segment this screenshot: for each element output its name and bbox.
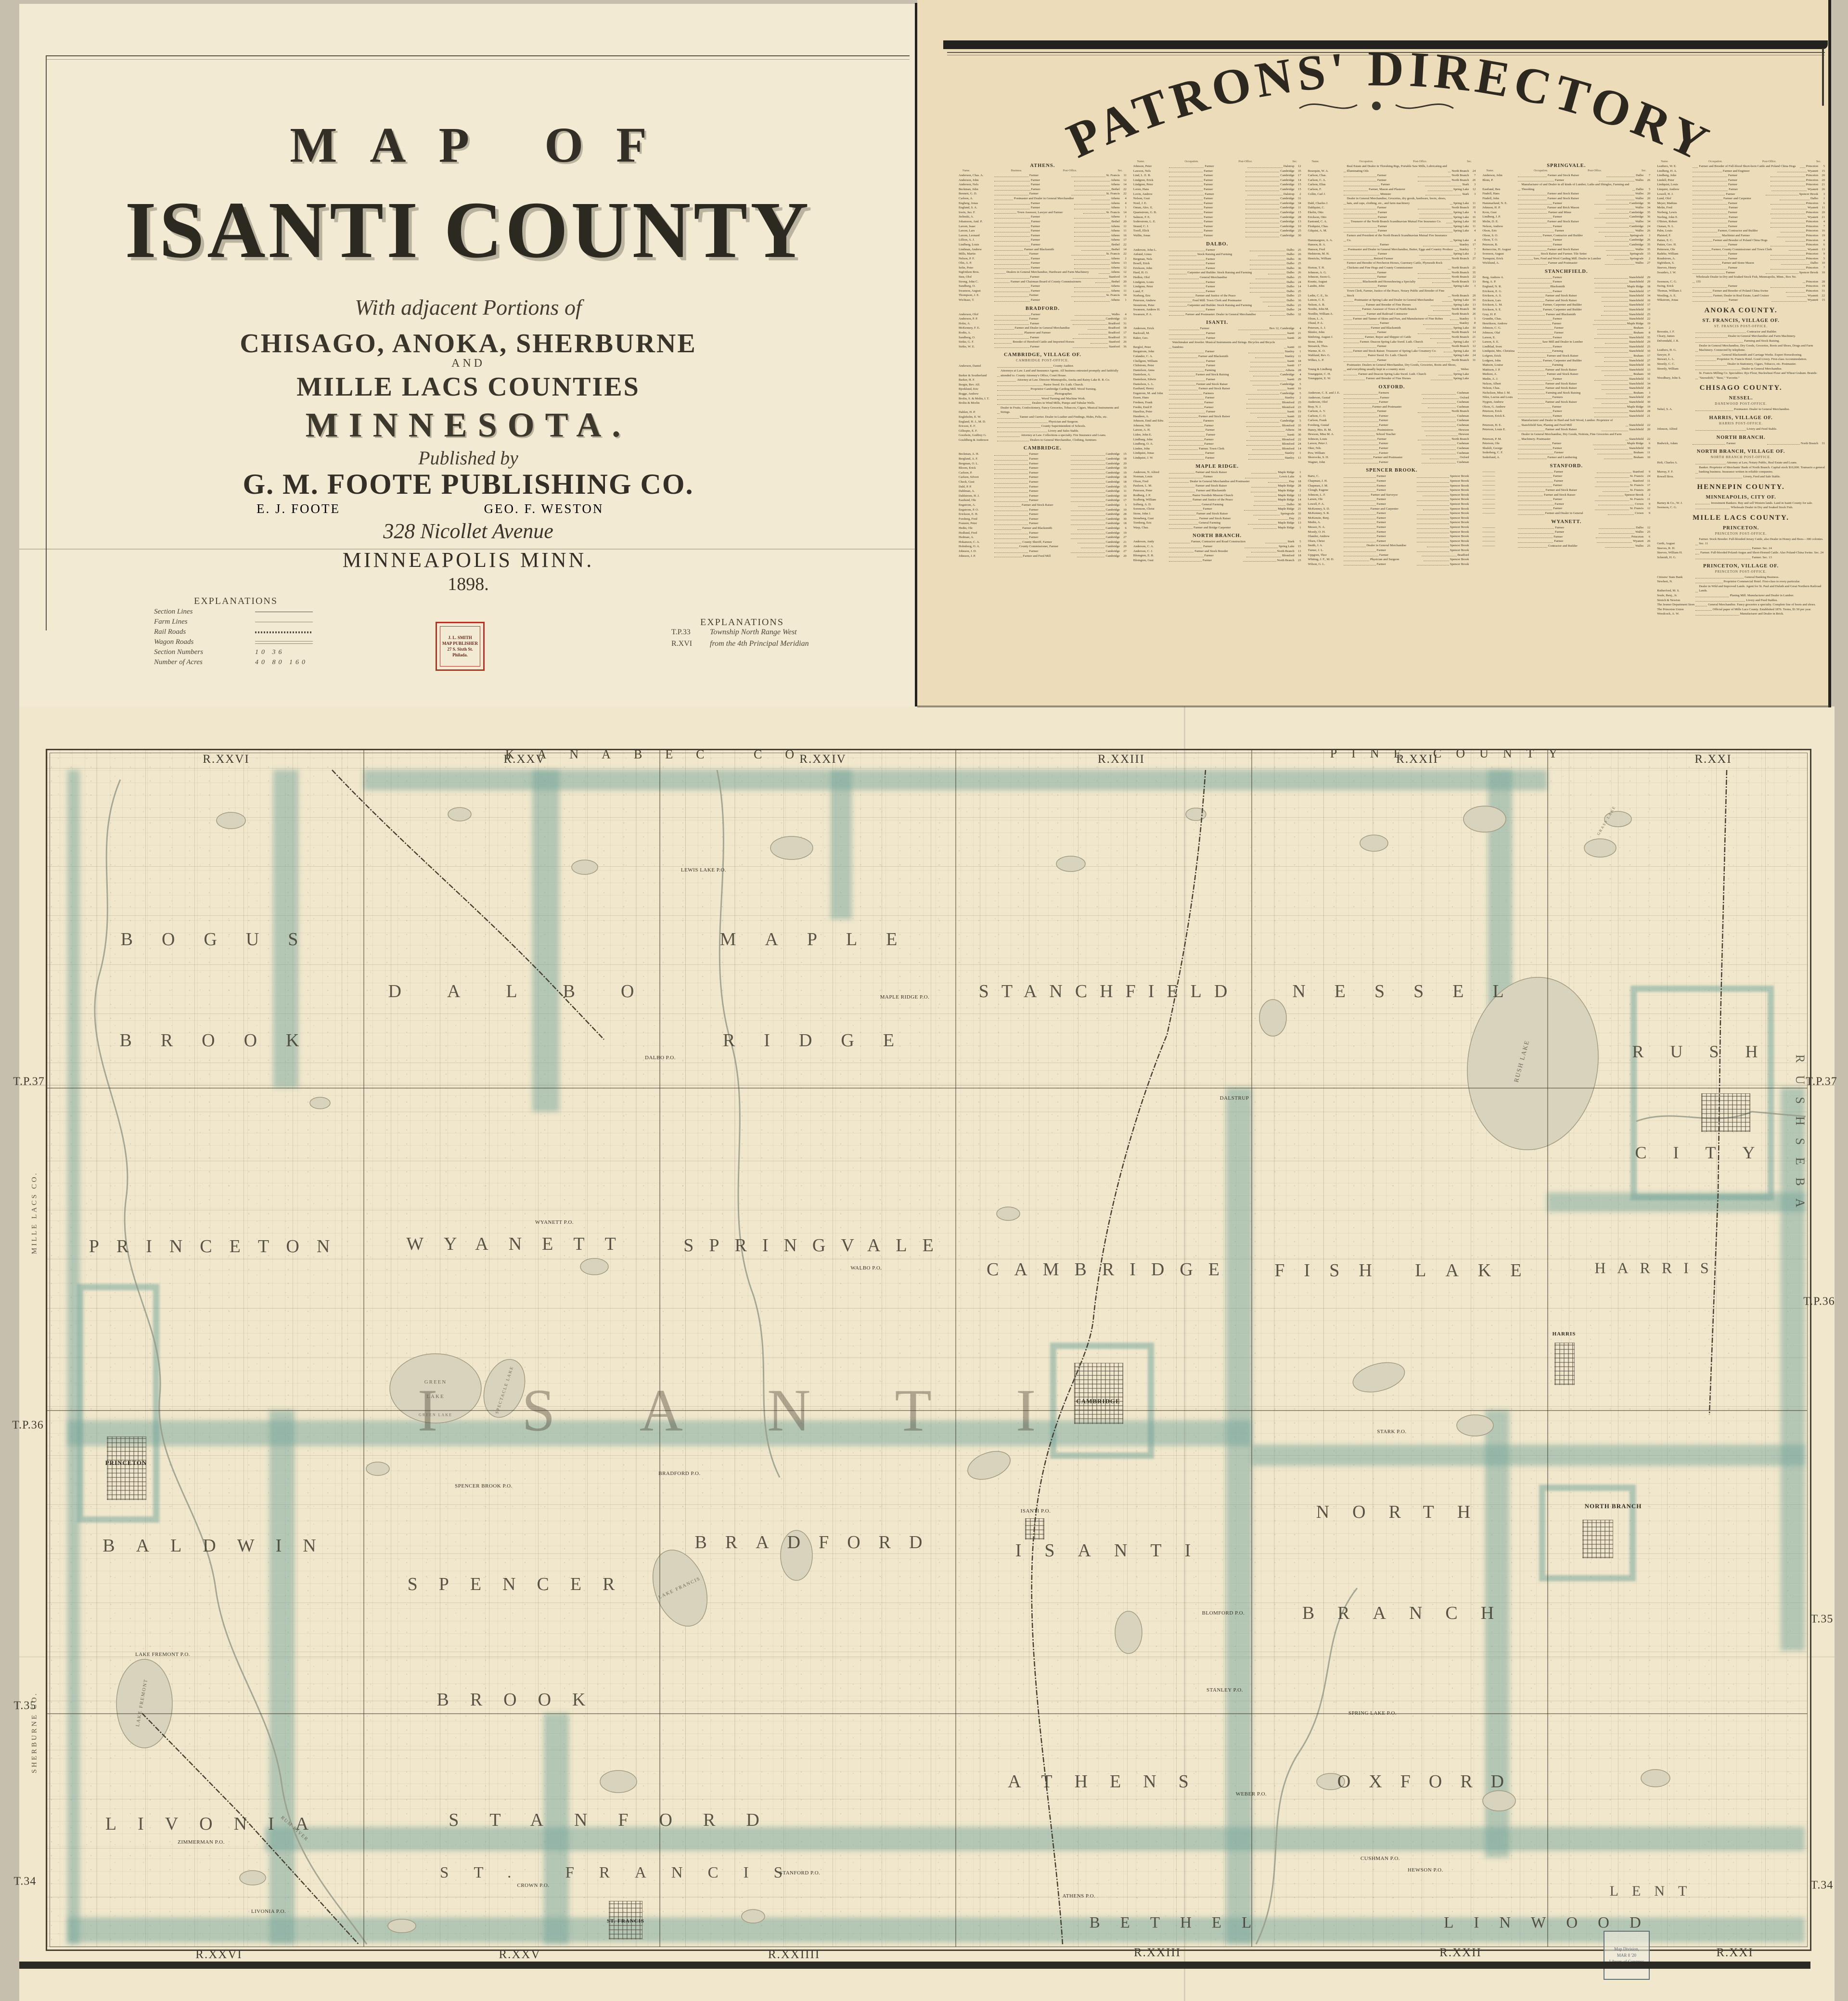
map-label-po: CROWN P.O. <box>517 1883 549 1888</box>
map-label-po: HEWSON P.O. <box>1408 1867 1443 1873</box>
map-label-range: R.XXI <box>1694 753 1732 766</box>
map-label-lkb: LAKE <box>426 1394 444 1399</box>
map-label-town: MAPLE <box>691 929 926 950</box>
map-label-town: CAMBRIDGE <box>971 1259 1235 1280</box>
library-stamp-line: Map Division, <box>1614 1946 1639 1952</box>
map-label-range: R.XXII <box>1439 1946 1482 1960</box>
map-label-po: SPENCER BROOK P.O. <box>455 1483 513 1489</box>
map-label-town: FISH LAKE <box>1255 1260 1540 1281</box>
library-stamp-line: MAR 8 '20 <box>1617 1952 1636 1959</box>
map-label-po: STANLEY P.O. <box>1206 1687 1243 1693</box>
map-label-town: LENT <box>1596 1883 1701 1899</box>
map-label-town: BOGUS <box>92 929 327 950</box>
library-stamp: Map Division,MAR 8 '20Library of Congres… <box>1604 1931 1650 1980</box>
map-label-po: BRADFORD P.O. <box>658 1471 701 1476</box>
map-label-town: ATHENS <box>986 1771 1211 1792</box>
map-label-town: SPRINGVALE <box>668 1235 949 1256</box>
map-label-town: CITY <box>1609 1142 1782 1163</box>
map-label-po: WEBER P.O. <box>1236 1791 1267 1797</box>
map-label-town: DALBO <box>343 981 680 1002</box>
map-label-po: LEWIS LAKE P.O. <box>681 867 726 873</box>
map-label-tlab: T.P.37 <box>1806 1076 1837 1089</box>
map-label-county: PINE COUNTY <box>1316 746 1572 761</box>
map-label-tlab: T.P.36 <box>12 1419 44 1432</box>
map-label-range: R.XXV <box>499 1948 540 1962</box>
map-label-po: ISANTI P.O. <box>1021 1508 1051 1514</box>
map-label-vcounty: MILLE LACS CO. <box>31 1171 39 1254</box>
map-label-vlab: HARRIS <box>1553 1331 1576 1337</box>
map-label-po: WALBO P.O. <box>850 1265 882 1271</box>
map-label-vcounty: SHERBURNE CO. <box>31 1692 39 1773</box>
map-label-range: R.XXVI <box>195 1948 242 1962</box>
map-label-range: R.XXIIII <box>768 1948 820 1962</box>
map-label-town: PRINCETON <box>72 1236 347 1257</box>
map-label-po: LAKE FREMONT P.O. <box>135 1652 190 1657</box>
map-label-town: WYANETT <box>386 1233 636 1255</box>
map-label-po: CUSHMAN P.O. <box>1360 1856 1400 1861</box>
map-label-tlab: T.34 <box>14 1875 37 1888</box>
map-label-tlab: T.35 <box>1811 1613 1834 1626</box>
map-label-po: SPRING LAKE P.O. <box>1348 1710 1397 1716</box>
map-label-town: SPENCER <box>386 1574 636 1595</box>
map-label-town: BRANCH <box>1279 1603 1517 1624</box>
map-label-town: ST. FRANCIS <box>415 1864 808 1882</box>
map-label-po: ZIMMERMAN P.O. <box>178 1839 225 1845</box>
map-label-range: R.XXIII <box>1098 753 1145 766</box>
map-label-town: STANFORD <box>418 1809 790 1831</box>
map-label-lkb: GREEN LAKE <box>419 1413 452 1417</box>
map-label-town: ISANTI <box>992 1540 1214 1561</box>
map-label-po: MAPLE RIDGE P.O. <box>880 994 930 1000</box>
bottom-fold-bar <box>19 1962 1810 1969</box>
map-label-vtown: RUSHSEBA <box>1793 1042 1807 1220</box>
map-label-po: STANFORD P.O. <box>780 1870 821 1876</box>
map-label-town: NESSEL <box>1263 981 1532 1002</box>
map-label-giant: ISANTI <box>334 1377 1120 1446</box>
map-label-town: NORTH <box>1293 1501 1494 1523</box>
map-label-po: DALBO P.O. <box>645 1055 676 1061</box>
map-label-tlab: T.34 <box>1811 1879 1834 1892</box>
map-label-town: BRADFORD <box>677 1532 941 1553</box>
map-label-town: RIDGE <box>694 1030 923 1051</box>
map-label-range: R.XXI <box>1716 1946 1753 1960</box>
map-label-tlab: T.P.36 <box>1803 1296 1835 1308</box>
map-label-po: ATHENS P.O. <box>1063 1893 1096 1899</box>
map-label-tlab: T.P.37 <box>13 1076 45 1089</box>
map-label-town: BROOK <box>415 1689 606 1710</box>
map-label-po: BLOMFORD P.O. <box>1202 1610 1245 1616</box>
map-label-lkb: GREEN <box>424 1379 447 1385</box>
scanned-atlas-sheet: MAP OF ISANTI COUNTY With adjacent Porti… <box>0 0 1848 2001</box>
map-label-town: LINWOOD <box>1424 1914 1661 1932</box>
map-label-town: OXFORD <box>1319 1771 1522 1792</box>
map-label-vlab: NORTH BRANCH <box>1585 1502 1642 1510</box>
map-label-county: KANABEC CO <box>482 747 817 762</box>
map-label-po: STARK P.O. <box>1377 1429 1406 1435</box>
map-label-po: WYANETT P.O. <box>535 1219 574 1225</box>
map-label-range: R.XXIII <box>1134 1946 1181 1960</box>
map-label-vlab: ST. FRANCIS <box>607 1918 644 1924</box>
map-label-town: BROOK <box>90 1030 328 1051</box>
map-label-town: BETHEL <box>1069 1914 1271 1932</box>
map-label-town: STANCHFIELD <box>966 981 1240 1002</box>
map-label-town: HARRIS <box>1583 1259 1720 1277</box>
map-label-vlab: CAMBRIDGE <box>1076 1398 1120 1405</box>
map-label-po: LIVONIA P.O. <box>251 1909 286 1914</box>
map-label-town: RUSH <box>1605 1041 1784 1062</box>
map-label-town: BALDWIN <box>81 1535 337 1556</box>
map-label-range: R.XXVI <box>203 753 249 766</box>
map-label-po: DALSTRUP <box>1220 1095 1249 1101</box>
map-label-vlab: PRINCETON <box>105 1459 147 1467</box>
